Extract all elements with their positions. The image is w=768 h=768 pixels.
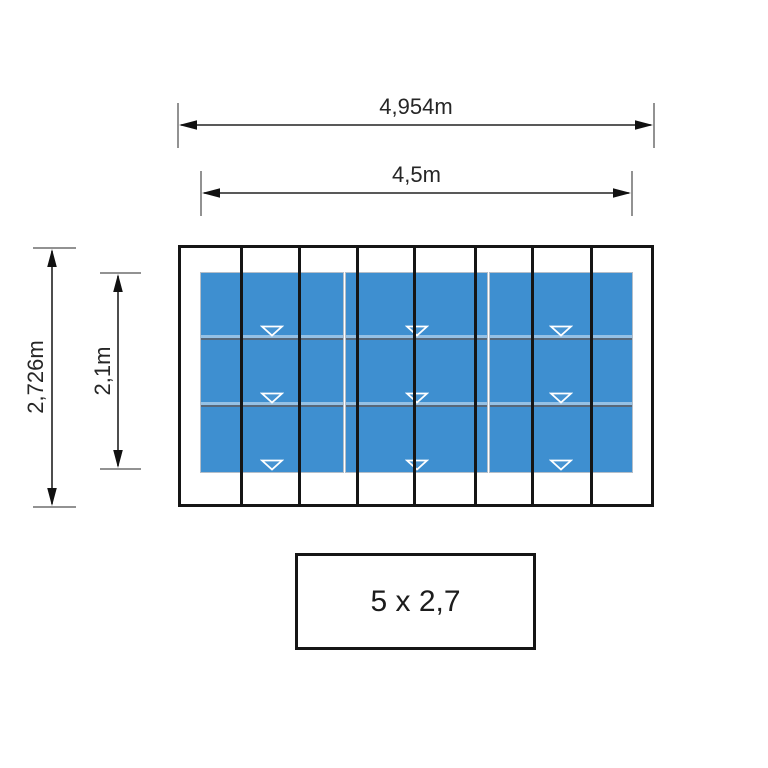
arrow-left-icon	[202, 188, 220, 198]
panel-group	[201, 273, 343, 472]
panel-marker-triangle-icon	[405, 325, 429, 337]
size-label-box: 5 x 2,7	[295, 553, 536, 650]
panel-marker-triangle-icon	[260, 459, 284, 471]
panel-marker-triangle-icon	[549, 459, 573, 471]
panel-marker-triangle-icon	[260, 392, 284, 404]
panel-marker-triangle-icon	[405, 459, 429, 471]
panel-area	[201, 273, 632, 472]
panel-marker-triangle-icon	[549, 325, 573, 337]
inner-width-dimension-label: 4,5m	[201, 164, 632, 186]
rafter-line	[240, 245, 243, 507]
arrow-up-icon	[47, 249, 57, 267]
size-label-text: 5 x 2,7	[370, 585, 460, 619]
panel-cell	[346, 407, 488, 472]
rafter-line	[474, 245, 477, 507]
panel-marker-triangle-icon	[405, 392, 429, 404]
technical-drawing-canvas: 4,954m 4,5m 2,726m 2,1m	[0, 0, 768, 768]
arrow-left-icon	[179, 120, 197, 130]
panel-cell	[490, 407, 632, 472]
inner-height-dimension-label: 2,1m	[92, 301, 114, 441]
panel-cell	[490, 273, 632, 340]
arrow-down-icon	[47, 488, 57, 506]
arrow-right-icon	[635, 120, 653, 130]
rafter-line	[590, 245, 593, 507]
arrow-up-icon	[113, 274, 123, 292]
outer-height-dimension-label: 2,726m	[25, 307, 47, 447]
panel-cell	[346, 340, 488, 407]
panel-cell	[201, 407, 343, 472]
panel-group	[490, 273, 632, 472]
rafter-line	[413, 245, 416, 507]
panel-cell	[346, 273, 488, 340]
panel-cell	[201, 273, 343, 340]
panel-cell	[490, 340, 632, 407]
rafter-line	[356, 245, 359, 507]
panel-marker-triangle-icon	[549, 392, 573, 404]
panel-group	[346, 273, 488, 472]
panel-marker-triangle-icon	[260, 325, 284, 337]
arrow-down-icon	[113, 450, 123, 468]
arrow-right-icon	[613, 188, 631, 198]
rafter-line	[531, 245, 534, 507]
panel-cell	[201, 340, 343, 407]
rafter-line	[298, 245, 301, 507]
outer-width-dimension-label: 4,954m	[178, 96, 654, 118]
